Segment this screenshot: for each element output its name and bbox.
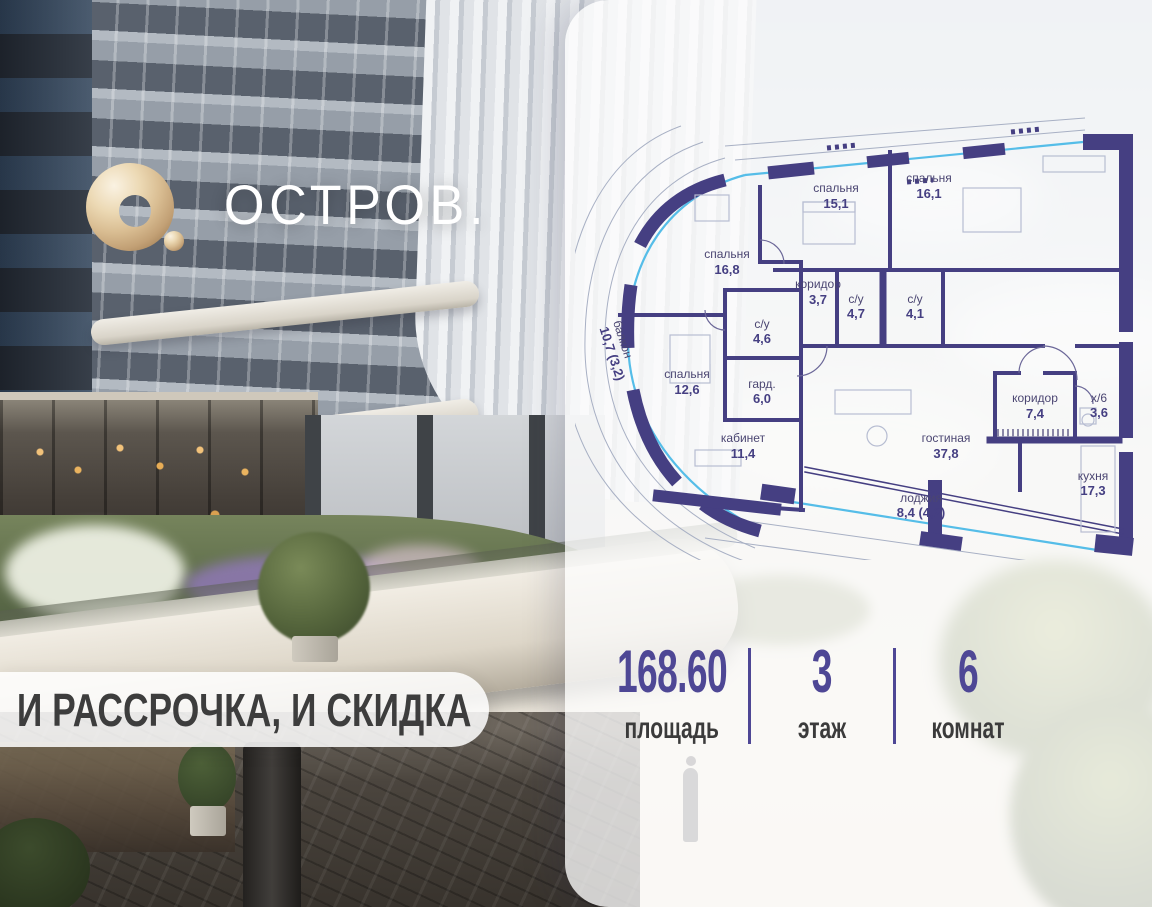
stats-divider (748, 648, 751, 744)
floor-value: 3 (812, 642, 832, 702)
logo-wordmark: ОСТРОВ. (224, 172, 488, 237)
stat-floor: 3 этаж (788, 642, 857, 746)
stats-divider (893, 648, 896, 744)
tree-planter (292, 636, 338, 662)
apartment-stats: 168.60 площадь 3 этаж 6 комнат (565, 0, 1152, 907)
stat-area: 168.60 площадь (583, 642, 761, 746)
promo-banner: И РАССРОЧКА, И СКИДКА (0, 672, 489, 747)
rooms-label: комнат (932, 712, 1005, 746)
rooms-value: 6 (958, 642, 978, 702)
round-tree (258, 532, 370, 644)
real-estate-ad: спальня15,1 спальня16,1 спальня16,8 кори… (0, 0, 1152, 907)
area-value: 168.60 (617, 642, 727, 702)
area-label: площадь (625, 712, 719, 746)
stat-rooms: 6 комнат (916, 642, 1020, 746)
plant-pot (190, 806, 226, 836)
floor-label: этаж (798, 712, 846, 746)
column (243, 742, 301, 907)
logo-ring-icon (83, 148, 201, 266)
promo-banner-text: И РАССРОЧКА, И СКИДКА (17, 683, 472, 737)
info-panel: спальня15,1 спальня16,1 спальня16,8 кори… (565, 0, 1152, 907)
potted-plant (178, 742, 236, 812)
